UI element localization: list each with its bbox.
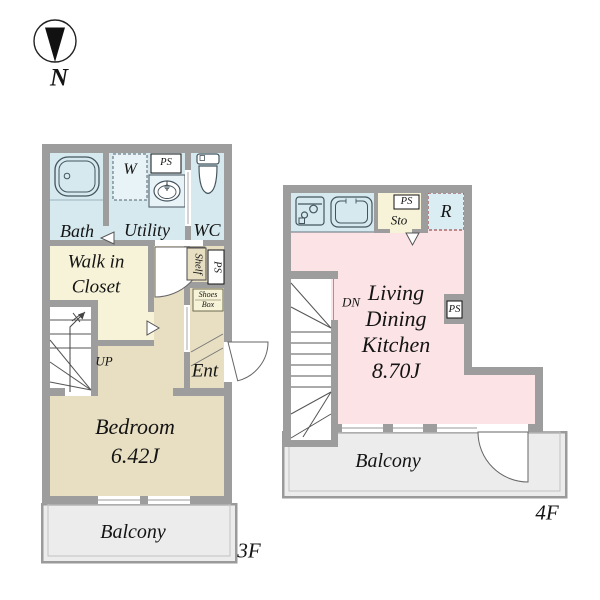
washbasin-icon <box>149 175 185 207</box>
ps-label-4f-side: PS <box>449 304 461 315</box>
entrance-label: Ent <box>192 362 218 381</box>
shelf-label: Shelf <box>191 254 202 275</box>
ldk-size-label: 8.70J <box>372 360 420 382</box>
shoes-box-label-line2: Box <box>202 301 214 309</box>
utility-label: Utility <box>124 221 170 239</box>
ldk-label-line2: Dining <box>365 308 426 330</box>
ldk-label-line3: Kitchen <box>362 334 430 356</box>
ps-label-4f-top: PS <box>401 197 413 208</box>
bedroom-size-label: 6.42J <box>111 445 159 467</box>
shoes-box-label-line1: Shoes <box>199 291 218 299</box>
floor-3f-label: 3F <box>237 541 260 562</box>
wc-label: WC <box>194 221 221 239</box>
north-arrow-icon <box>34 20 76 62</box>
walkin-closet-label-line1: Walk in <box>68 253 125 272</box>
walkin-closet-label-line2: Closet <box>72 278 121 297</box>
floorplan-geometry <box>0 0 600 600</box>
floor-4f-label: 4F <box>535 503 558 524</box>
floorplan-canvas: N Bath W PS WC Utility Walk in Closet Sh… <box>0 0 600 600</box>
stairs-dn-label: DN <box>342 296 360 309</box>
stairs-up-label: UP <box>95 355 112 368</box>
ldk-room-extension <box>460 375 535 424</box>
stairs-4f-floor <box>291 279 331 440</box>
storage-label: Sto <box>391 214 408 227</box>
ldk-label-line1: Living <box>368 282 424 304</box>
ps-label-3f-top: PS <box>160 158 172 169</box>
north-label: N <box>50 66 68 91</box>
balcony-3f-label: Balcony <box>100 522 166 542</box>
refrigerator-label: R <box>441 202 452 220</box>
bedroom-label: Bedroom <box>95 416 175 438</box>
bath-label: Bath <box>60 222 94 240</box>
balcony-4f-label: Balcony <box>355 451 421 471</box>
washer-label: W <box>123 162 136 178</box>
floor-3f-plan <box>42 144 268 562</box>
entrance-door-arc <box>228 342 268 381</box>
walkin-closet-room-lower <box>98 300 154 340</box>
ps-label-3f-side: PS <box>211 261 222 273</box>
